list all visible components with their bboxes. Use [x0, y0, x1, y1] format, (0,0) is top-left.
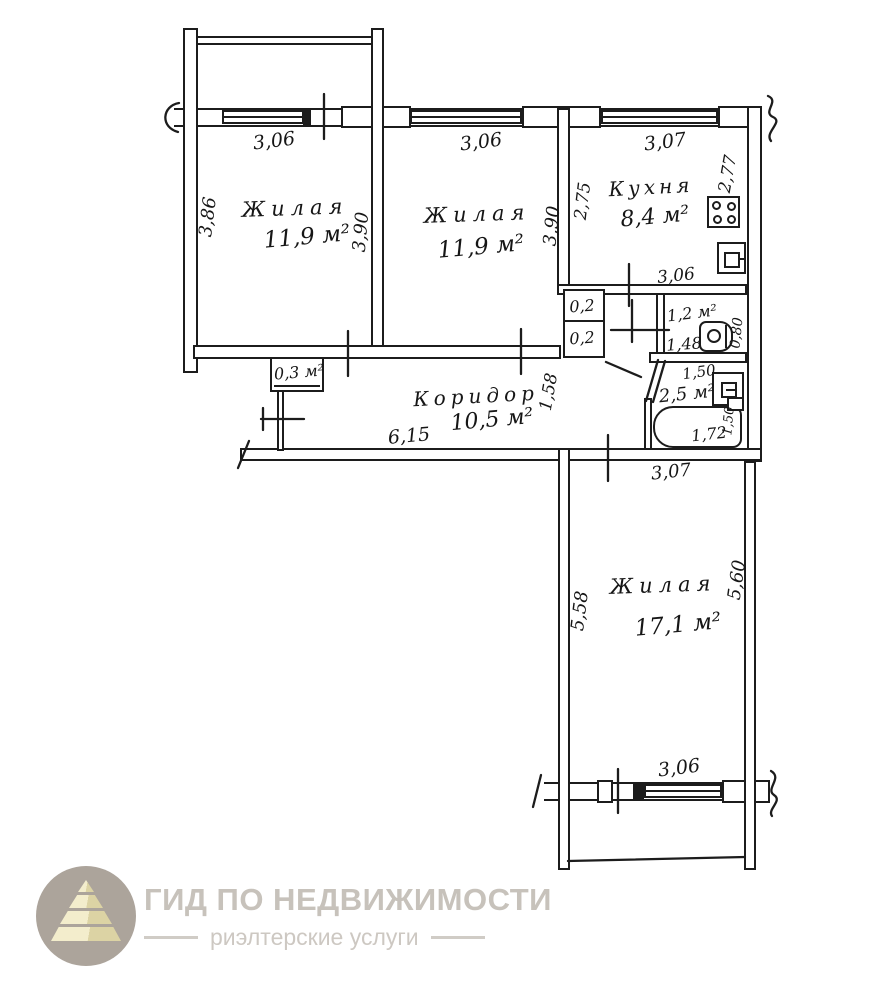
- toilet-left-wall: [656, 293, 665, 355]
- dim-kitchen-left: 2,75: [571, 181, 595, 221]
- logo-circle: [36, 866, 136, 966]
- brand-subtitle-row: риэлтерские услуги: [144, 924, 544, 951]
- dim-window-kitchen: 3,07: [643, 129, 688, 156]
- subtitle-dash-right: [431, 936, 485, 939]
- closet-lower-area: 0,2: [569, 328, 596, 349]
- floor-plan-page: 3,06 3,06 3,07 Жилая 11,9 м² 3,86 3,90 Ж…: [0, 0, 885, 1000]
- toilet-bottom-wall: [649, 352, 747, 363]
- pyramid-tier-icon: [78, 880, 94, 892]
- kitchen-sink-icon: [717, 242, 746, 274]
- window-frame-divider-bottom: [633, 782, 644, 801]
- dim-kitchen-right: 2,77: [715, 154, 741, 195]
- toilet-bowl-icon: [707, 329, 721, 343]
- pyramid-tier-icon: [51, 927, 121, 941]
- south-band-end-tick: [533, 775, 541, 807]
- window-room3: [644, 784, 722, 798]
- bathroom-area: 2,5 м²: [658, 381, 716, 408]
- brand-footer: ГИД ПО НЕДВИЖИМОСТИ риэлтерские услуги: [36, 862, 566, 982]
- dim-toilet-depth: 0,80: [727, 317, 746, 350]
- window-room2: [410, 110, 522, 124]
- room2-area: 11,9 м²: [437, 230, 526, 263]
- pyramid-tier-icon: [60, 911, 112, 924]
- dim-toilet-width: 1,48: [666, 333, 703, 354]
- brand-title: ГИД ПО НЕДВИЖИМОСТИ: [144, 882, 552, 918]
- bathroom-left-wall: [644, 398, 652, 451]
- window-room1: [222, 110, 304, 124]
- window-frame-divider-top: [303, 108, 311, 127]
- closet-upper-area: 0,2: [569, 296, 596, 317]
- wall-room2-kitchen: [557, 108, 570, 295]
- bath-sink-faucet-icon: [726, 389, 736, 391]
- dim-corridor-length: 6,15: [387, 423, 431, 449]
- pyramid-tier-icon: [69, 895, 103, 908]
- dim-room2-depth: 3,90: [539, 205, 564, 247]
- kitchen-sink-faucet-icon: [738, 258, 746, 260]
- dim-bathroom-side: 1,50: [720, 406, 737, 436]
- wall-break-squiggle-bottom-right: [771, 771, 777, 816]
- room1-name: Жилая: [241, 194, 349, 222]
- room3-right-wall: [744, 461, 756, 870]
- wall-break-squiggle-top-right: [768, 96, 776, 141]
- corridor-area: 10,5 м²: [450, 404, 535, 436]
- dim-room1-depth: 3,90: [349, 211, 373, 253]
- dim-room1-side: 3,86: [195, 196, 221, 238]
- dim-window-room1: 3,06: [252, 128, 297, 155]
- wall-room1-room2: [371, 28, 384, 358]
- room3-left-wall: [558, 448, 570, 870]
- south-pier-1: [597, 780, 613, 803]
- room3-area: 17,1 м²: [634, 608, 723, 641]
- kitchen-area: 8,4 м²: [620, 202, 691, 233]
- window-kitchen: [601, 110, 718, 124]
- balcony-bottom-edge: [568, 857, 745, 861]
- stove-burner-icon: [713, 215, 722, 224]
- brand-subtitle: риэлтерские услуги: [210, 924, 419, 951]
- bathroom-door-line: [606, 362, 641, 377]
- hall-closet-inner-line: [274, 385, 320, 387]
- stove-icon: [707, 196, 740, 228]
- kitchen-name: Кухня: [608, 173, 694, 201]
- balcony-rail-top: [196, 36, 374, 45]
- dim-corridor-width: 1,58: [536, 372, 562, 413]
- east-exterior-wall: [747, 106, 762, 462]
- room1-area: 11,9 м²: [263, 220, 352, 253]
- dim-room3-left: 5,58: [567, 590, 593, 632]
- dim-room3-window: 3,06: [657, 755, 702, 782]
- dim-kitchen-bottom: 3,06: [656, 264, 696, 288]
- subtitle-dash-left: [144, 936, 198, 939]
- stove-burner-icon: [712, 201, 721, 210]
- pyramid-logo-icon: [47, 866, 125, 956]
- west-exterior-wall: [183, 28, 198, 373]
- room2-name: Жилая: [423, 200, 531, 228]
- stove-burner-icon: [727, 215, 736, 224]
- stove-burner-icon: [727, 202, 736, 211]
- room3-name: Жилая: [609, 571, 717, 599]
- closet-divider: [563, 320, 605, 322]
- bathroom-diagonal-wall: [646, 360, 658, 401]
- dim-window-room2: 3,06: [459, 129, 504, 156]
- rooms-bottom-wall: [193, 345, 561, 359]
- dim-room3-top: 3,07: [650, 459, 692, 484]
